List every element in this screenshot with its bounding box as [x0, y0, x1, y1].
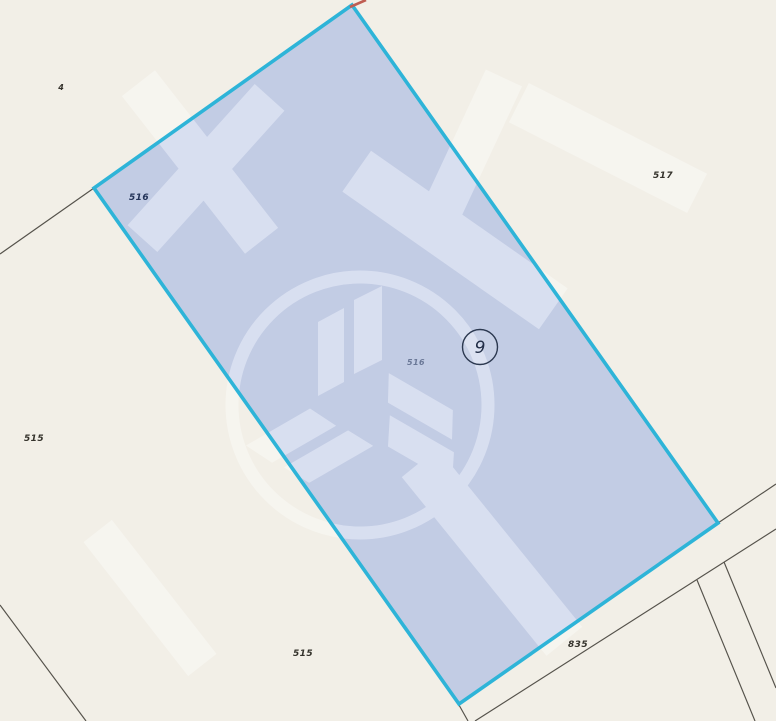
parcel-label-516-center: 516 — [407, 358, 425, 367]
map-viewport[interactable]: 4 516 517 515 516 515 835 9 — [0, 0, 776, 721]
parcel-label-516: 516 — [129, 193, 149, 203]
cadastral-map[interactable]: 4 516 517 515 516 515 835 9 — [0, 0, 776, 721]
parcel-marker-9[interactable]: 9 — [463, 330, 498, 365]
parcel-label-517: 517 — [653, 171, 673, 181]
parcel-label-515-west: 515 — [24, 434, 44, 444]
parcel-label-835: 835 — [568, 640, 588, 650]
parcel-label-515-south: 515 — [293, 649, 313, 659]
parcel-label-4: 4 — [57, 83, 64, 92]
marker-value: 9 — [475, 338, 486, 358]
